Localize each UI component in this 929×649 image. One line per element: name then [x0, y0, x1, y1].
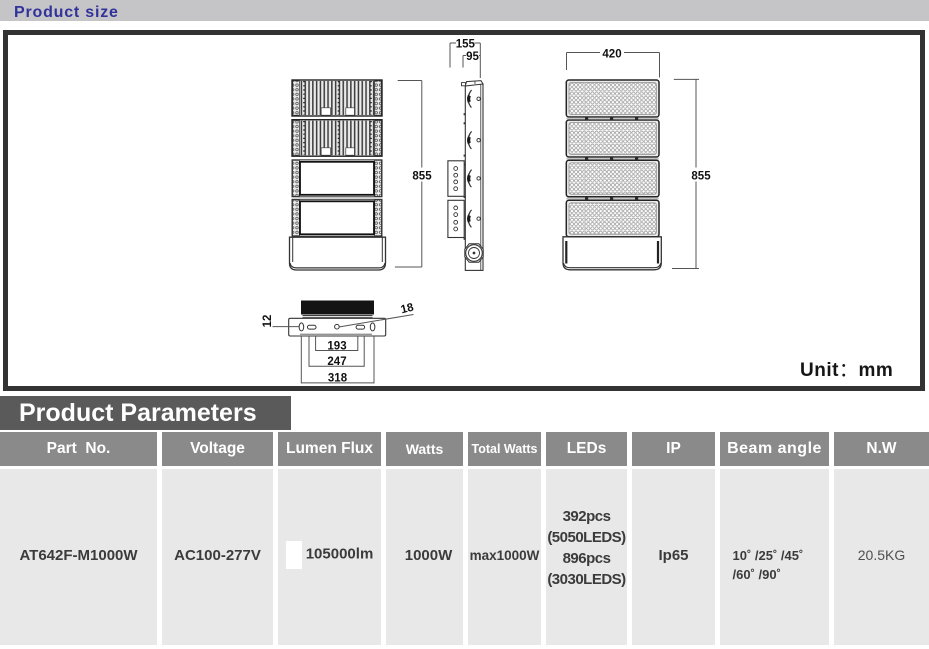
- svg-text:12: 12: [262, 315, 274, 328]
- svg-text:95: 95: [466, 51, 479, 63]
- svg-text:318: 318: [328, 373, 348, 385]
- svg-text:855: 855: [412, 171, 432, 183]
- svg-text:855: 855: [691, 171, 711, 183]
- svg-text:247: 247: [327, 356, 346, 368]
- svg-text:155: 155: [456, 39, 476, 51]
- svg-text:193: 193: [327, 340, 346, 352]
- svg-text:420: 420: [602, 49, 621, 61]
